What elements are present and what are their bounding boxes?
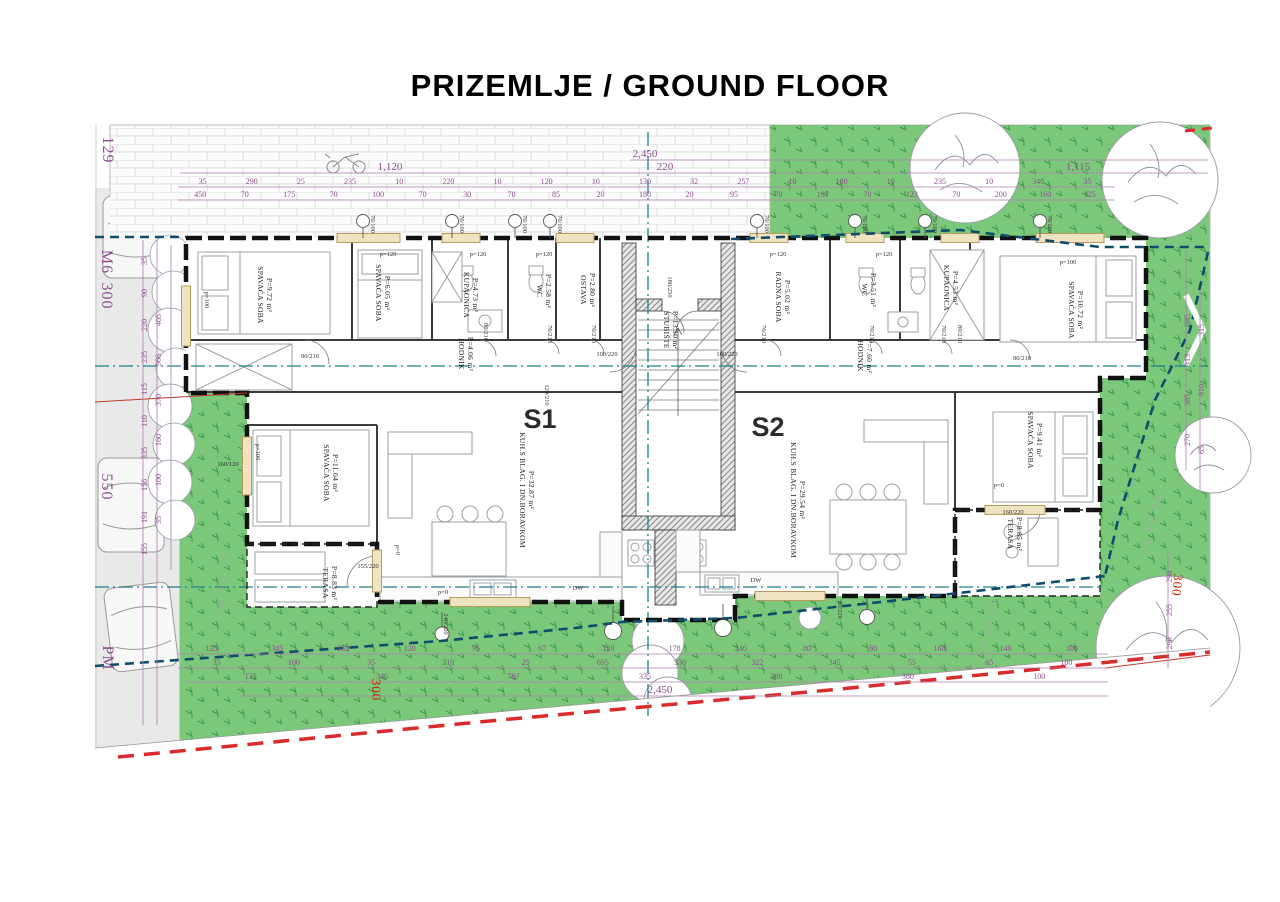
svg-text:35: 35 bbox=[213, 658, 221, 667]
svg-text:35: 35 bbox=[1083, 177, 1091, 186]
svg-text:70: 70 bbox=[508, 190, 516, 199]
svg-text:35: 35 bbox=[140, 257, 149, 265]
entry-door-label: 100/220 bbox=[596, 351, 617, 358]
svg-text:HODNIKP=7.60 m²: HODNIKP=7.60 m² bbox=[856, 339, 874, 374]
svg-text:110: 110 bbox=[140, 415, 149, 427]
svg-text:120: 120 bbox=[404, 644, 416, 653]
setback-label: 300 bbox=[1169, 574, 1186, 598]
svg-text:290: 290 bbox=[246, 177, 258, 186]
parapet-label: p=0 bbox=[394, 545, 401, 555]
svg-text:175: 175 bbox=[283, 190, 295, 199]
svg-text:35: 35 bbox=[367, 658, 375, 667]
svg-text:180: 180 bbox=[836, 177, 848, 186]
entry-door-label: 100/220 bbox=[716, 351, 737, 358]
dim-top-right: 1,115 bbox=[1066, 161, 1091, 173]
svg-text:310: 310 bbox=[442, 658, 454, 667]
svg-text:70: 70 bbox=[952, 190, 960, 199]
svg-text:220: 220 bbox=[442, 177, 454, 186]
parapet-label: p=100 bbox=[254, 444, 261, 461]
svg-text:345: 345 bbox=[829, 658, 841, 667]
stove bbox=[628, 540, 654, 566]
svg-text:KUPAONICAP=4.53 m²: KUPAONICAP=4.53 m² bbox=[942, 265, 960, 311]
svg-text:290: 290 bbox=[1165, 637, 1174, 649]
room-label-s1-storage: OSTAVAP=2.80 m² bbox=[579, 273, 597, 308]
dishwasher-label: DW bbox=[573, 585, 585, 592]
svg-text:30: 30 bbox=[463, 190, 471, 199]
svg-text:235: 235 bbox=[934, 177, 946, 186]
svg-text:340: 340 bbox=[1032, 177, 1044, 186]
svg-text:70: 70 bbox=[863, 190, 871, 199]
door-size-label: 70/210 bbox=[590, 325, 597, 343]
shower bbox=[432, 252, 462, 302]
wardrobe bbox=[196, 344, 292, 390]
svg-text:115: 115 bbox=[140, 383, 149, 395]
parapet-label: p=120 bbox=[536, 251, 553, 258]
dim-top-left: 1,120 bbox=[378, 161, 403, 173]
svg-text:385: 385 bbox=[1183, 314, 1192, 326]
svg-text:235: 235 bbox=[344, 177, 356, 186]
setback-label: 300 bbox=[369, 679, 384, 702]
svg-text:370: 370 bbox=[154, 394, 163, 406]
svg-text:767: 767 bbox=[508, 672, 520, 681]
svg-text:322: 322 bbox=[751, 658, 763, 667]
parapet-label: p=0 bbox=[438, 589, 448, 596]
svg-text:70: 70 bbox=[241, 190, 249, 199]
window-size-label: 70/100 bbox=[931, 215, 938, 233]
window-size-label: 70/100 bbox=[458, 215, 465, 233]
svg-text:90: 90 bbox=[140, 289, 149, 297]
svg-text:966: 966 bbox=[154, 354, 163, 366]
svg-text:123: 123 bbox=[906, 190, 918, 199]
svg-text:120: 120 bbox=[541, 177, 553, 186]
svg-text:270: 270 bbox=[1183, 434, 1192, 446]
unit-label-s2: S2 bbox=[751, 412, 784, 442]
svg-text:240: 240 bbox=[735, 644, 747, 653]
svg-text:OSTAVAP=2.80 m²: OSTAVAP=2.80 m² bbox=[579, 273, 597, 308]
svg-text:20: 20 bbox=[685, 190, 693, 199]
window-size-label: 70/100 bbox=[1046, 215, 1053, 233]
door-size-label: 70/210 bbox=[868, 325, 875, 343]
svg-text:450: 450 bbox=[194, 190, 206, 199]
svg-text:156: 156 bbox=[140, 479, 149, 491]
svg-text:10: 10 bbox=[887, 177, 895, 186]
svg-text:HODNIKP=4.06 m²: HODNIKP=4.06 m² bbox=[457, 337, 475, 372]
room-label-s2-hall: HODNIKP=7.60 m² bbox=[856, 339, 874, 374]
svg-text:100: 100 bbox=[1033, 672, 1045, 681]
svg-text:130: 130 bbox=[639, 177, 651, 186]
svg-text:200: 200 bbox=[995, 190, 1007, 199]
door-size-label: 90/210 bbox=[1013, 355, 1031, 362]
svg-text:135: 135 bbox=[245, 672, 257, 681]
window-size-label: 160/120 bbox=[217, 461, 238, 468]
svg-text:180: 180 bbox=[639, 190, 651, 199]
svg-text:380: 380 bbox=[902, 672, 914, 681]
door-size-label: 90/210 bbox=[301, 353, 319, 360]
road-width: 550 bbox=[98, 474, 115, 501]
bed bbox=[253, 430, 369, 526]
window-size-label: 70/100 bbox=[369, 215, 376, 233]
tree bbox=[1102, 122, 1218, 238]
svg-text:235: 235 bbox=[140, 351, 149, 363]
svg-text:695: 695 bbox=[597, 658, 609, 667]
svg-text:255: 255 bbox=[1165, 604, 1174, 616]
road-marking: M6 bbox=[98, 250, 115, 274]
svg-text:55: 55 bbox=[908, 658, 916, 667]
svg-text:TERASAP=8.85 m²: TERASAP=8.85 m² bbox=[1006, 517, 1024, 552]
svg-text:80: 80 bbox=[803, 644, 811, 653]
road-offset: 300 bbox=[98, 283, 115, 310]
sink bbox=[888, 312, 918, 332]
svg-text:155: 155 bbox=[140, 543, 149, 555]
svg-text:32: 32 bbox=[690, 177, 698, 186]
door-size-label: 80/210 bbox=[956, 325, 963, 343]
dim-top-total: 2,450 bbox=[633, 148, 658, 160]
main-entry-label: 180/250 bbox=[666, 276, 673, 297]
parapet-label: p=120 bbox=[470, 251, 487, 258]
dim-bottom-total: 2,450 bbox=[648, 684, 673, 696]
parapet-label: p=120 bbox=[876, 251, 893, 258]
floor-plan-drawing: 3529025235102201012010130322571018010235… bbox=[0, 0, 1280, 902]
svg-text:TERASAP=8.83 m²: TERASAP=8.83 m² bbox=[321, 566, 339, 601]
parapet-label: p=120 bbox=[380, 251, 397, 258]
svg-text:STUBIŠTEP=13.10 m²: STUBIŠTEP=13.10 m² bbox=[662, 311, 680, 350]
svg-text:140: 140 bbox=[1000, 644, 1012, 653]
dim-top-mid: 220 bbox=[657, 161, 674, 173]
svg-text:70: 70 bbox=[330, 190, 338, 199]
svg-text:KUPAONICAP=4.73 m²: KUPAONICAP=4.73 m² bbox=[462, 272, 480, 318]
svg-text:220: 220 bbox=[140, 319, 149, 331]
svg-text:10: 10 bbox=[985, 177, 993, 186]
window-size-label: 80/220 bbox=[836, 601, 843, 619]
svg-text:197: 197 bbox=[817, 190, 829, 199]
svg-text:70: 70 bbox=[419, 190, 427, 199]
svg-text:120: 120 bbox=[602, 644, 614, 653]
parapet-label: p=100 bbox=[1060, 259, 1077, 266]
svg-text:330: 330 bbox=[674, 658, 686, 667]
svg-text:67: 67 bbox=[538, 644, 546, 653]
floor-plan-page: PRIZEMLJE / GROUND FLOOR bbox=[0, 0, 1280, 902]
svg-text:178: 178 bbox=[669, 644, 681, 653]
svg-text:10: 10 bbox=[494, 177, 502, 186]
svg-text:257: 257 bbox=[737, 177, 749, 186]
svg-text:25: 25 bbox=[297, 177, 305, 186]
svg-text:335: 335 bbox=[639, 672, 651, 681]
svg-text:95: 95 bbox=[472, 644, 480, 653]
svg-text:35: 35 bbox=[154, 516, 163, 524]
svg-text:405: 405 bbox=[154, 314, 163, 326]
room-label-s1-hall: HODNIKP=4.06 m² bbox=[457, 337, 475, 372]
room-label-s1-bathroom: KUPAONICAP=4.73 m² bbox=[462, 272, 480, 318]
svg-text:80: 80 bbox=[869, 644, 877, 653]
svg-text:25: 25 bbox=[522, 658, 530, 667]
window-size-label: 70/100 bbox=[521, 215, 528, 233]
svg-text:552: 552 bbox=[338, 644, 350, 653]
svg-text:160: 160 bbox=[933, 644, 945, 653]
unit-label-s1: S1 bbox=[523, 404, 556, 434]
svg-text:125: 125 bbox=[1084, 190, 1096, 199]
svg-text:385: 385 bbox=[1183, 394, 1192, 406]
window-size-label: 70/100 bbox=[861, 215, 868, 233]
door-size-label: 70/210 bbox=[940, 325, 947, 343]
svg-text:65: 65 bbox=[1197, 446, 1206, 454]
room-label-stairs: STUBIŠTEP=13.10 m² bbox=[662, 311, 680, 350]
terrace-door-label: 155/220 bbox=[357, 563, 378, 570]
svg-text:135: 135 bbox=[205, 644, 217, 653]
svg-text:100: 100 bbox=[154, 474, 163, 486]
dishwasher-label: DW bbox=[751, 577, 763, 584]
door-size-label: 70/210 bbox=[760, 325, 767, 343]
svg-text:388: 388 bbox=[770, 672, 782, 681]
window-size-label: 70/100 bbox=[556, 215, 563, 233]
parapet-label: p=0 bbox=[994, 482, 1004, 489]
svg-text:160: 160 bbox=[154, 434, 163, 446]
svg-text:35: 35 bbox=[199, 177, 207, 186]
parapet-label: p=100 bbox=[203, 292, 210, 309]
room-label-s2-bathroom: KUPAONICAP=4.53 m² bbox=[942, 265, 960, 311]
svg-text:70: 70 bbox=[774, 190, 782, 199]
svg-text:85: 85 bbox=[552, 190, 560, 199]
room-label-s2-terrace: TERASAP=8.85 m² bbox=[1006, 517, 1024, 552]
svg-text:335: 335 bbox=[140, 447, 149, 459]
svg-text:315: 315 bbox=[1197, 324, 1206, 336]
svg-text:10: 10 bbox=[395, 177, 403, 186]
svg-text:910: 910 bbox=[1197, 384, 1206, 396]
svg-text:100: 100 bbox=[1066, 644, 1078, 653]
svg-text:20: 20 bbox=[597, 190, 605, 199]
window-size-label: 70/100 bbox=[763, 215, 770, 233]
dining-table bbox=[830, 484, 906, 570]
tree bbox=[910, 113, 1020, 223]
room-label-s1-terrace: TERASAP=8.83 m² bbox=[321, 566, 339, 601]
door-size-label: 120/210 bbox=[543, 384, 550, 405]
svg-text:313: 313 bbox=[1183, 354, 1192, 366]
svg-text:191: 191 bbox=[140, 511, 149, 523]
svg-text:100: 100 bbox=[288, 658, 300, 667]
toilet bbox=[911, 268, 925, 294]
svg-text:100: 100 bbox=[1060, 658, 1072, 667]
svg-text:100: 100 bbox=[372, 190, 384, 199]
svg-text:10: 10 bbox=[788, 177, 796, 186]
parapet-label: p=120 bbox=[770, 251, 787, 258]
svg-text:95: 95 bbox=[730, 190, 738, 199]
window-size-label: 240/220 bbox=[442, 613, 449, 634]
svg-text:345: 345 bbox=[271, 644, 283, 653]
door-size-label: 70/210 bbox=[546, 325, 553, 343]
plot-number: 129 bbox=[99, 137, 116, 164]
terrace-door-label: 160/220 bbox=[1002, 509, 1023, 516]
svg-text:10: 10 bbox=[592, 177, 600, 186]
door-size-label: 80/210 bbox=[482, 323, 489, 341]
svg-text:160: 160 bbox=[1039, 190, 1051, 199]
parking-label: PM bbox=[99, 645, 116, 670]
